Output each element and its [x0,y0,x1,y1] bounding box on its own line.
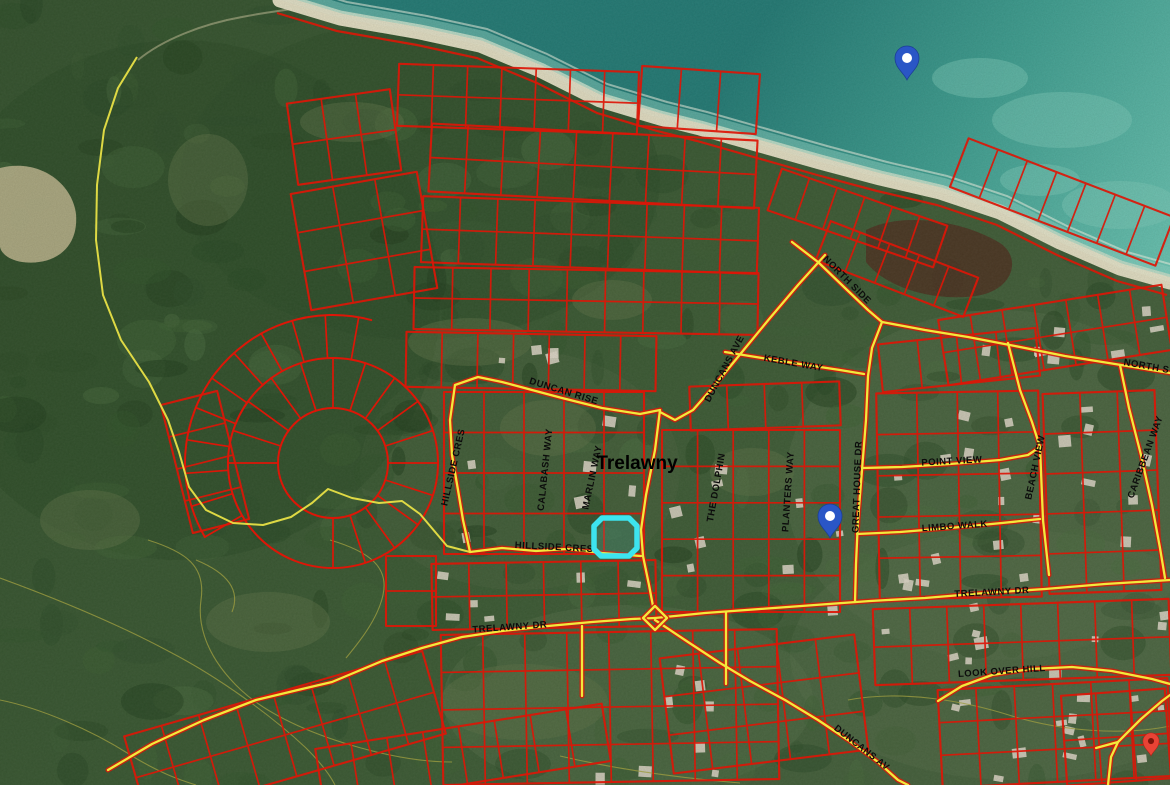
highlight-parcel-layer[interactable] [594,518,637,556]
town-label: Trelawny [596,453,678,474]
satellite-map-canvas[interactable]: DUNCAN RISEDUNCANS AVEKEBLE WAYNORTH SID… [0,0,1170,785]
map-viewport[interactable]: DUNCAN RISEDUNCANS AVEKEBLE WAYNORTH SID… [0,0,1170,785]
selected-parcel-outline[interactable] [594,518,637,556]
